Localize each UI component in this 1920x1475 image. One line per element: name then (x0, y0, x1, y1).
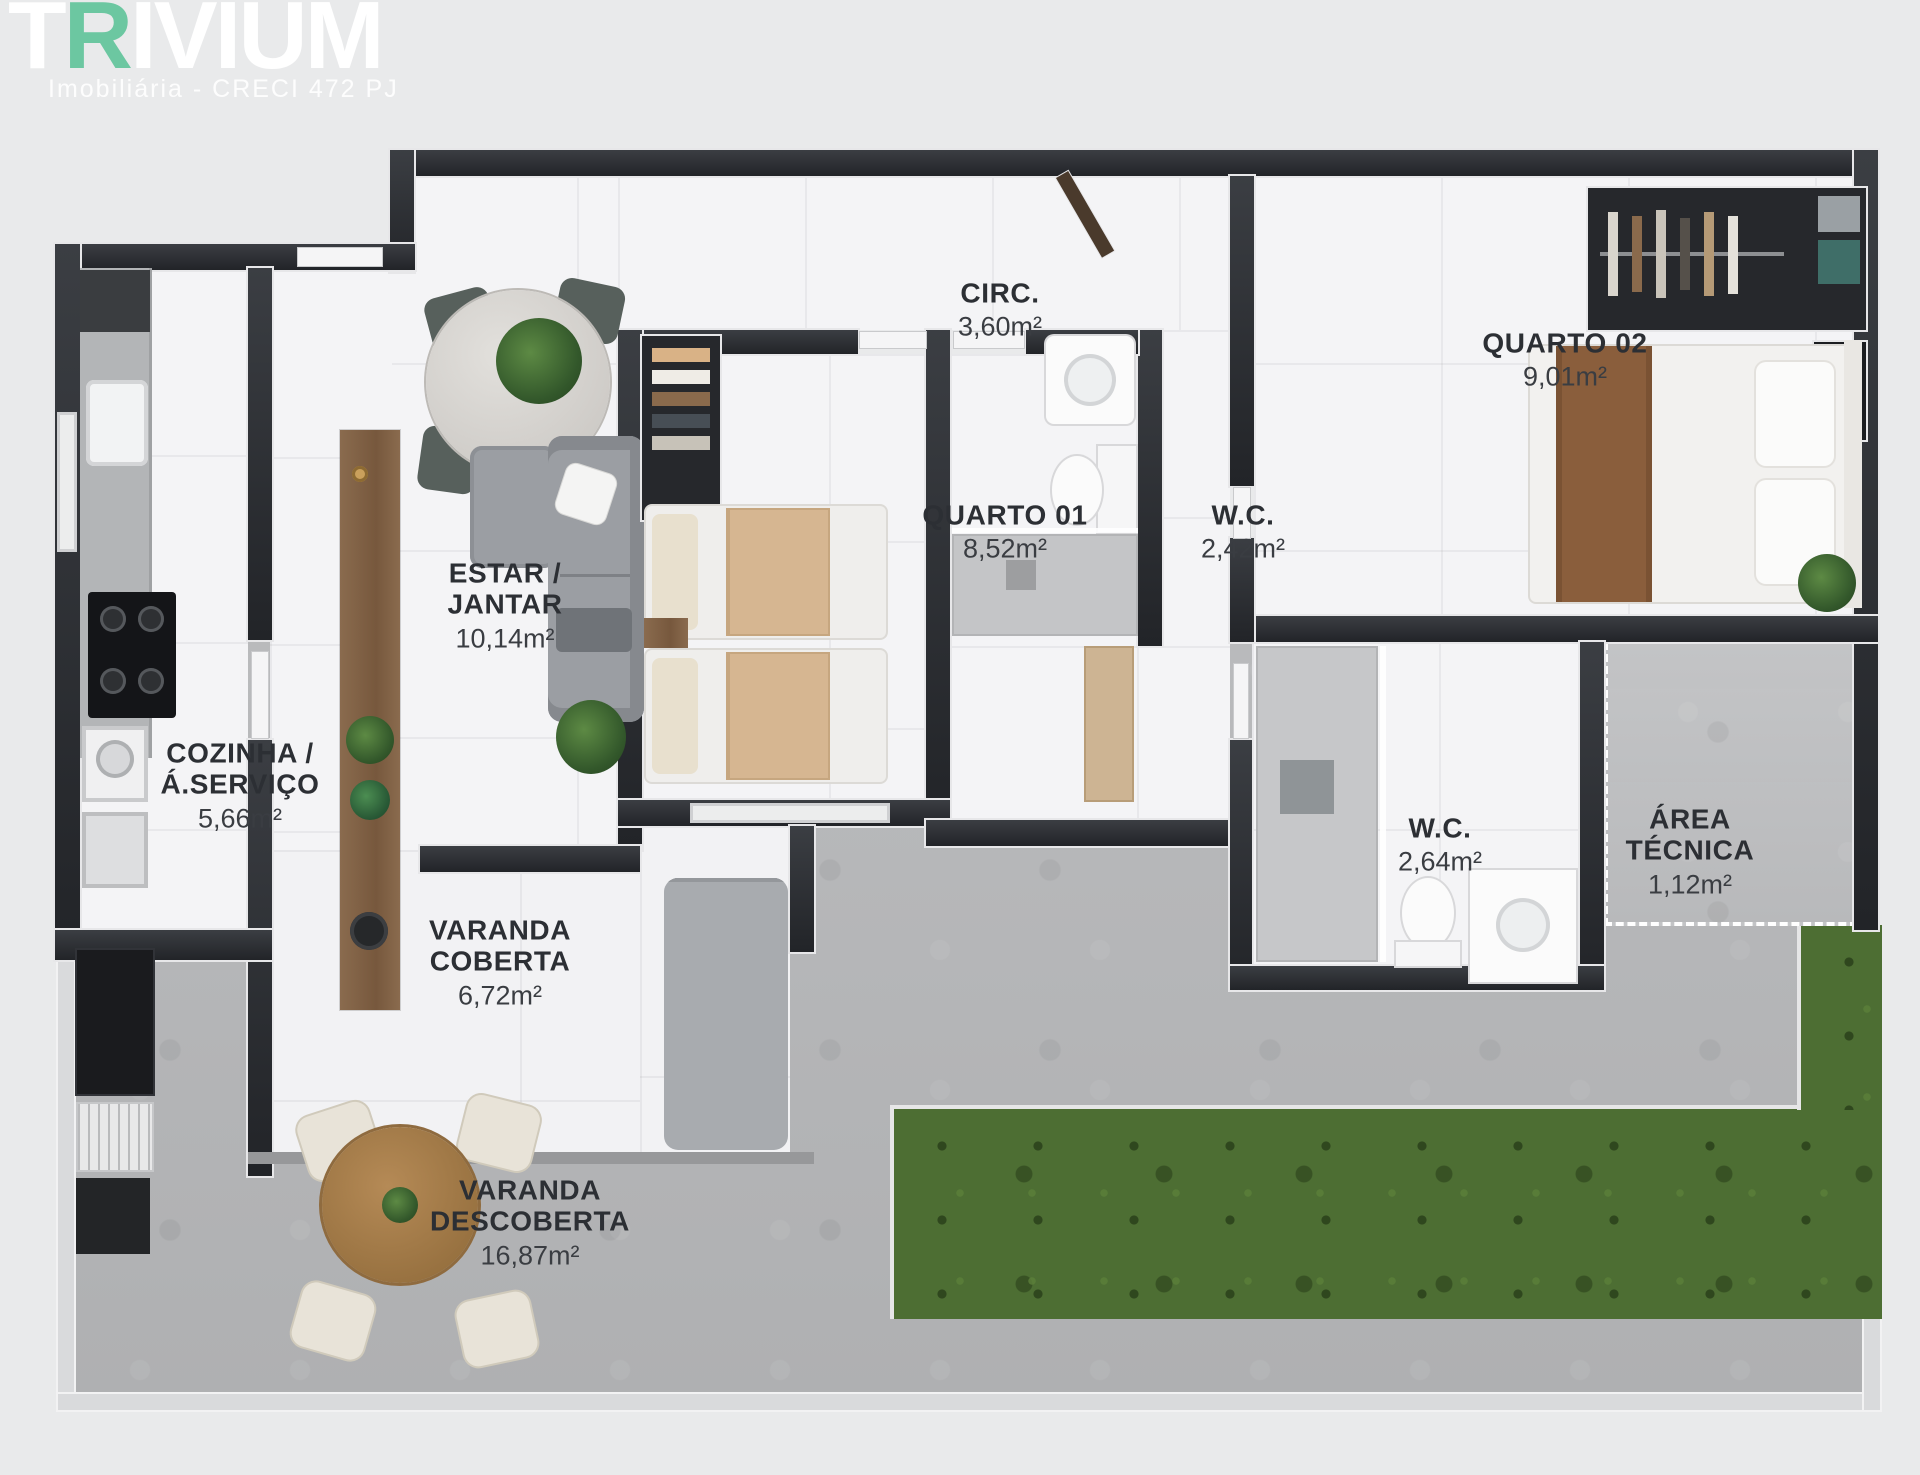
room-name: W.C. (1201, 499, 1285, 530)
room-label-wc-1: W.C. 2,42m² (1201, 499, 1285, 564)
sofa-throw-icon (556, 608, 632, 652)
bbq-mat-icon (76, 1178, 150, 1254)
wardrobe01-clothes-2 (652, 370, 710, 384)
bench-bowl-icon (350, 912, 388, 950)
wc2-door-leaf (1234, 664, 1248, 738)
wardrobe02-box-1 (1818, 196, 1860, 232)
quarto02-plant-icon (1798, 554, 1856, 612)
wall-varanda-stub (420, 846, 640, 872)
room-area: 9,01m² (1482, 362, 1647, 393)
floor-corridor (1162, 330, 1230, 646)
wall-left (55, 244, 80, 960)
wc2-shower-glass (1380, 646, 1386, 962)
room-area: 5,66m² (161, 803, 320, 834)
brand-subtitle: Imobiliária - CRECI 472 PJ (48, 75, 399, 104)
room-name-line2: TÉCNICA (1626, 835, 1755, 866)
wall-wc1-right (1138, 330, 1162, 646)
room-name: COZINHA / (161, 738, 320, 769)
room-name: ÁREA (1626, 804, 1755, 835)
quarto01-window (690, 803, 890, 823)
room-name: QUARTO 01 (922, 499, 1087, 530)
bench-plant-small-icon (350, 780, 390, 820)
wardrobe01-clothes-4 (652, 414, 710, 428)
grass-lawn-side (1797, 925, 1882, 1110)
room-label-quarto-01: QUARTO 01 8,52m² (922, 499, 1087, 564)
room-name-line2: Á.SERVIÇO (161, 769, 320, 800)
room-area: 8,52m² (922, 534, 1087, 565)
room-label-quarto-02: QUARTO 02 9,01m² (1482, 327, 1647, 392)
quarto01-door-leaf (860, 332, 926, 348)
kitchen-varanda-door-leaf (252, 652, 268, 738)
floor-circ (618, 176, 1230, 330)
room-label-varanda-descoberta: VARANDA DESCOBERTA 16,87m² (430, 1175, 630, 1272)
room-label-circ: CIRC. 3,60m² (958, 277, 1042, 342)
kitchen-sink-icon (86, 380, 148, 466)
room-name: VARANDA (429, 915, 571, 946)
floor-plan-page: { "logo": { "brand_t": "T", "brand_r": "… (0, 0, 1920, 1475)
bench-knob-icon (352, 466, 368, 482)
cooktop-burner-2 (138, 606, 164, 632)
wc2-basin-icon (1496, 898, 1550, 952)
room-area: 10,14m² (447, 623, 562, 654)
room-name: VARANDA (430, 1175, 630, 1206)
bed2-blanket-icon (726, 652, 830, 780)
nightstand-icon (644, 618, 688, 648)
bed2-pillow-icon (652, 658, 698, 774)
room-area: 2,42m² (1201, 534, 1285, 565)
room-name: QUARTO 02 (1482, 327, 1647, 358)
wall-quarto02-left-upper (1230, 176, 1254, 486)
cooktop-burner-1 (100, 606, 126, 632)
room-name: ESTAR / (447, 558, 562, 589)
hall-closet-door-icon (1086, 648, 1132, 800)
kitchen-window (57, 412, 77, 552)
room-name-line2: COBERTA (429, 946, 571, 977)
wall-hall-bottom (926, 820, 1230, 846)
wc2-toilet-bowl-icon (1402, 878, 1454, 948)
bench-plant-icon (346, 716, 394, 764)
wc2-toilet-tank (1396, 942, 1460, 966)
parapet-bottom (58, 1394, 1880, 1410)
bbq-counter-icon (75, 948, 155, 1096)
room-area: 3,60m² (958, 312, 1042, 343)
wall-varanda-pillar (790, 826, 814, 952)
wall-quarto01-right (926, 330, 950, 826)
room-name: W.C. (1398, 812, 1482, 843)
room-area: 2,64m² (1398, 847, 1482, 878)
room-label-cozinha: COZINHA / Á.SERVIÇO 5,66m² (161, 738, 320, 835)
dryer-icon (82, 812, 148, 888)
wardrobe-quarto01-icon (642, 336, 720, 520)
parapet-left (58, 958, 74, 1408)
varanda-palm-icon (556, 700, 626, 774)
room-area: 6,72m² (429, 980, 571, 1011)
washer-door-icon (96, 740, 134, 778)
room-name: CIRC. (958, 277, 1042, 308)
sofa-cushion-line (560, 574, 630, 577)
wall-kitchen-divider-upper (248, 268, 272, 640)
entry-door-leaf (298, 248, 382, 266)
wardrobe01-clothes-5 (652, 436, 710, 450)
wall-wc2-left (1230, 740, 1252, 990)
grate-icon (78, 1104, 152, 1170)
wall-quarto02-bottom (1252, 616, 1878, 642)
lounge-chair-icon (664, 878, 788, 1150)
outdoor-table-plant-icon (382, 1187, 418, 1223)
room-area: 1,12m² (1626, 869, 1755, 900)
wc1-basin-icon (1064, 354, 1116, 406)
wardrobe02-box-2 (1818, 240, 1860, 284)
wardrobe02-clothes-2 (1632, 216, 1642, 292)
grass-lawn-main (890, 1105, 1882, 1319)
wardrobe02-rod (1600, 252, 1784, 256)
wardrobe01-clothes-1 (652, 348, 710, 362)
cooktop-burner-4 (138, 668, 164, 694)
wardrobe02-clothes-3 (1656, 210, 1666, 298)
wc1-toilet-tank (1098, 446, 1136, 532)
sofa-chaise (470, 446, 556, 568)
wardrobe02-clothes-6 (1728, 216, 1738, 294)
room-label-wc-2: W.C. 2,64m² (1398, 812, 1482, 877)
wardrobe02-clothes-5 (1704, 212, 1714, 296)
wardrobe01-clothes-3 (652, 392, 710, 406)
parapet-right (1864, 1310, 1880, 1410)
wall-top (390, 150, 1878, 176)
wardrobe02-clothes-1 (1608, 212, 1618, 296)
room-name-line2: DESCOBERTA (430, 1206, 630, 1237)
dining-table-plant-icon (496, 318, 582, 404)
room-label-area-tecnica: ÁREA TÉCNICA 1,12m² (1626, 804, 1755, 901)
bed1-pillow-icon (652, 514, 698, 630)
bed-double-pillow-1 (1756, 362, 1834, 466)
cooktop-burner-3 (100, 668, 126, 694)
brand-wordmark: TRIVIUM (8, 0, 399, 87)
room-label-estar-jantar: ESTAR / JANTAR 10,14m² (447, 558, 562, 655)
wall-wc2-right (1580, 642, 1604, 990)
room-label-varanda-coberta: VARANDA COBERTA 6,72m² (429, 915, 571, 1012)
room-name-line2: JANTAR (447, 589, 562, 620)
kitchen-cabinet-icon (80, 270, 150, 332)
wc2-shower-head-icon (1280, 760, 1334, 814)
room-area: 16,87m² (430, 1240, 630, 1271)
brand-logo: TRIVIUM Imobiliária - CRECI 472 PJ (8, 0, 399, 104)
wardrobe02-clothes-4 (1680, 218, 1690, 290)
bed1-blanket-icon (726, 508, 830, 636)
